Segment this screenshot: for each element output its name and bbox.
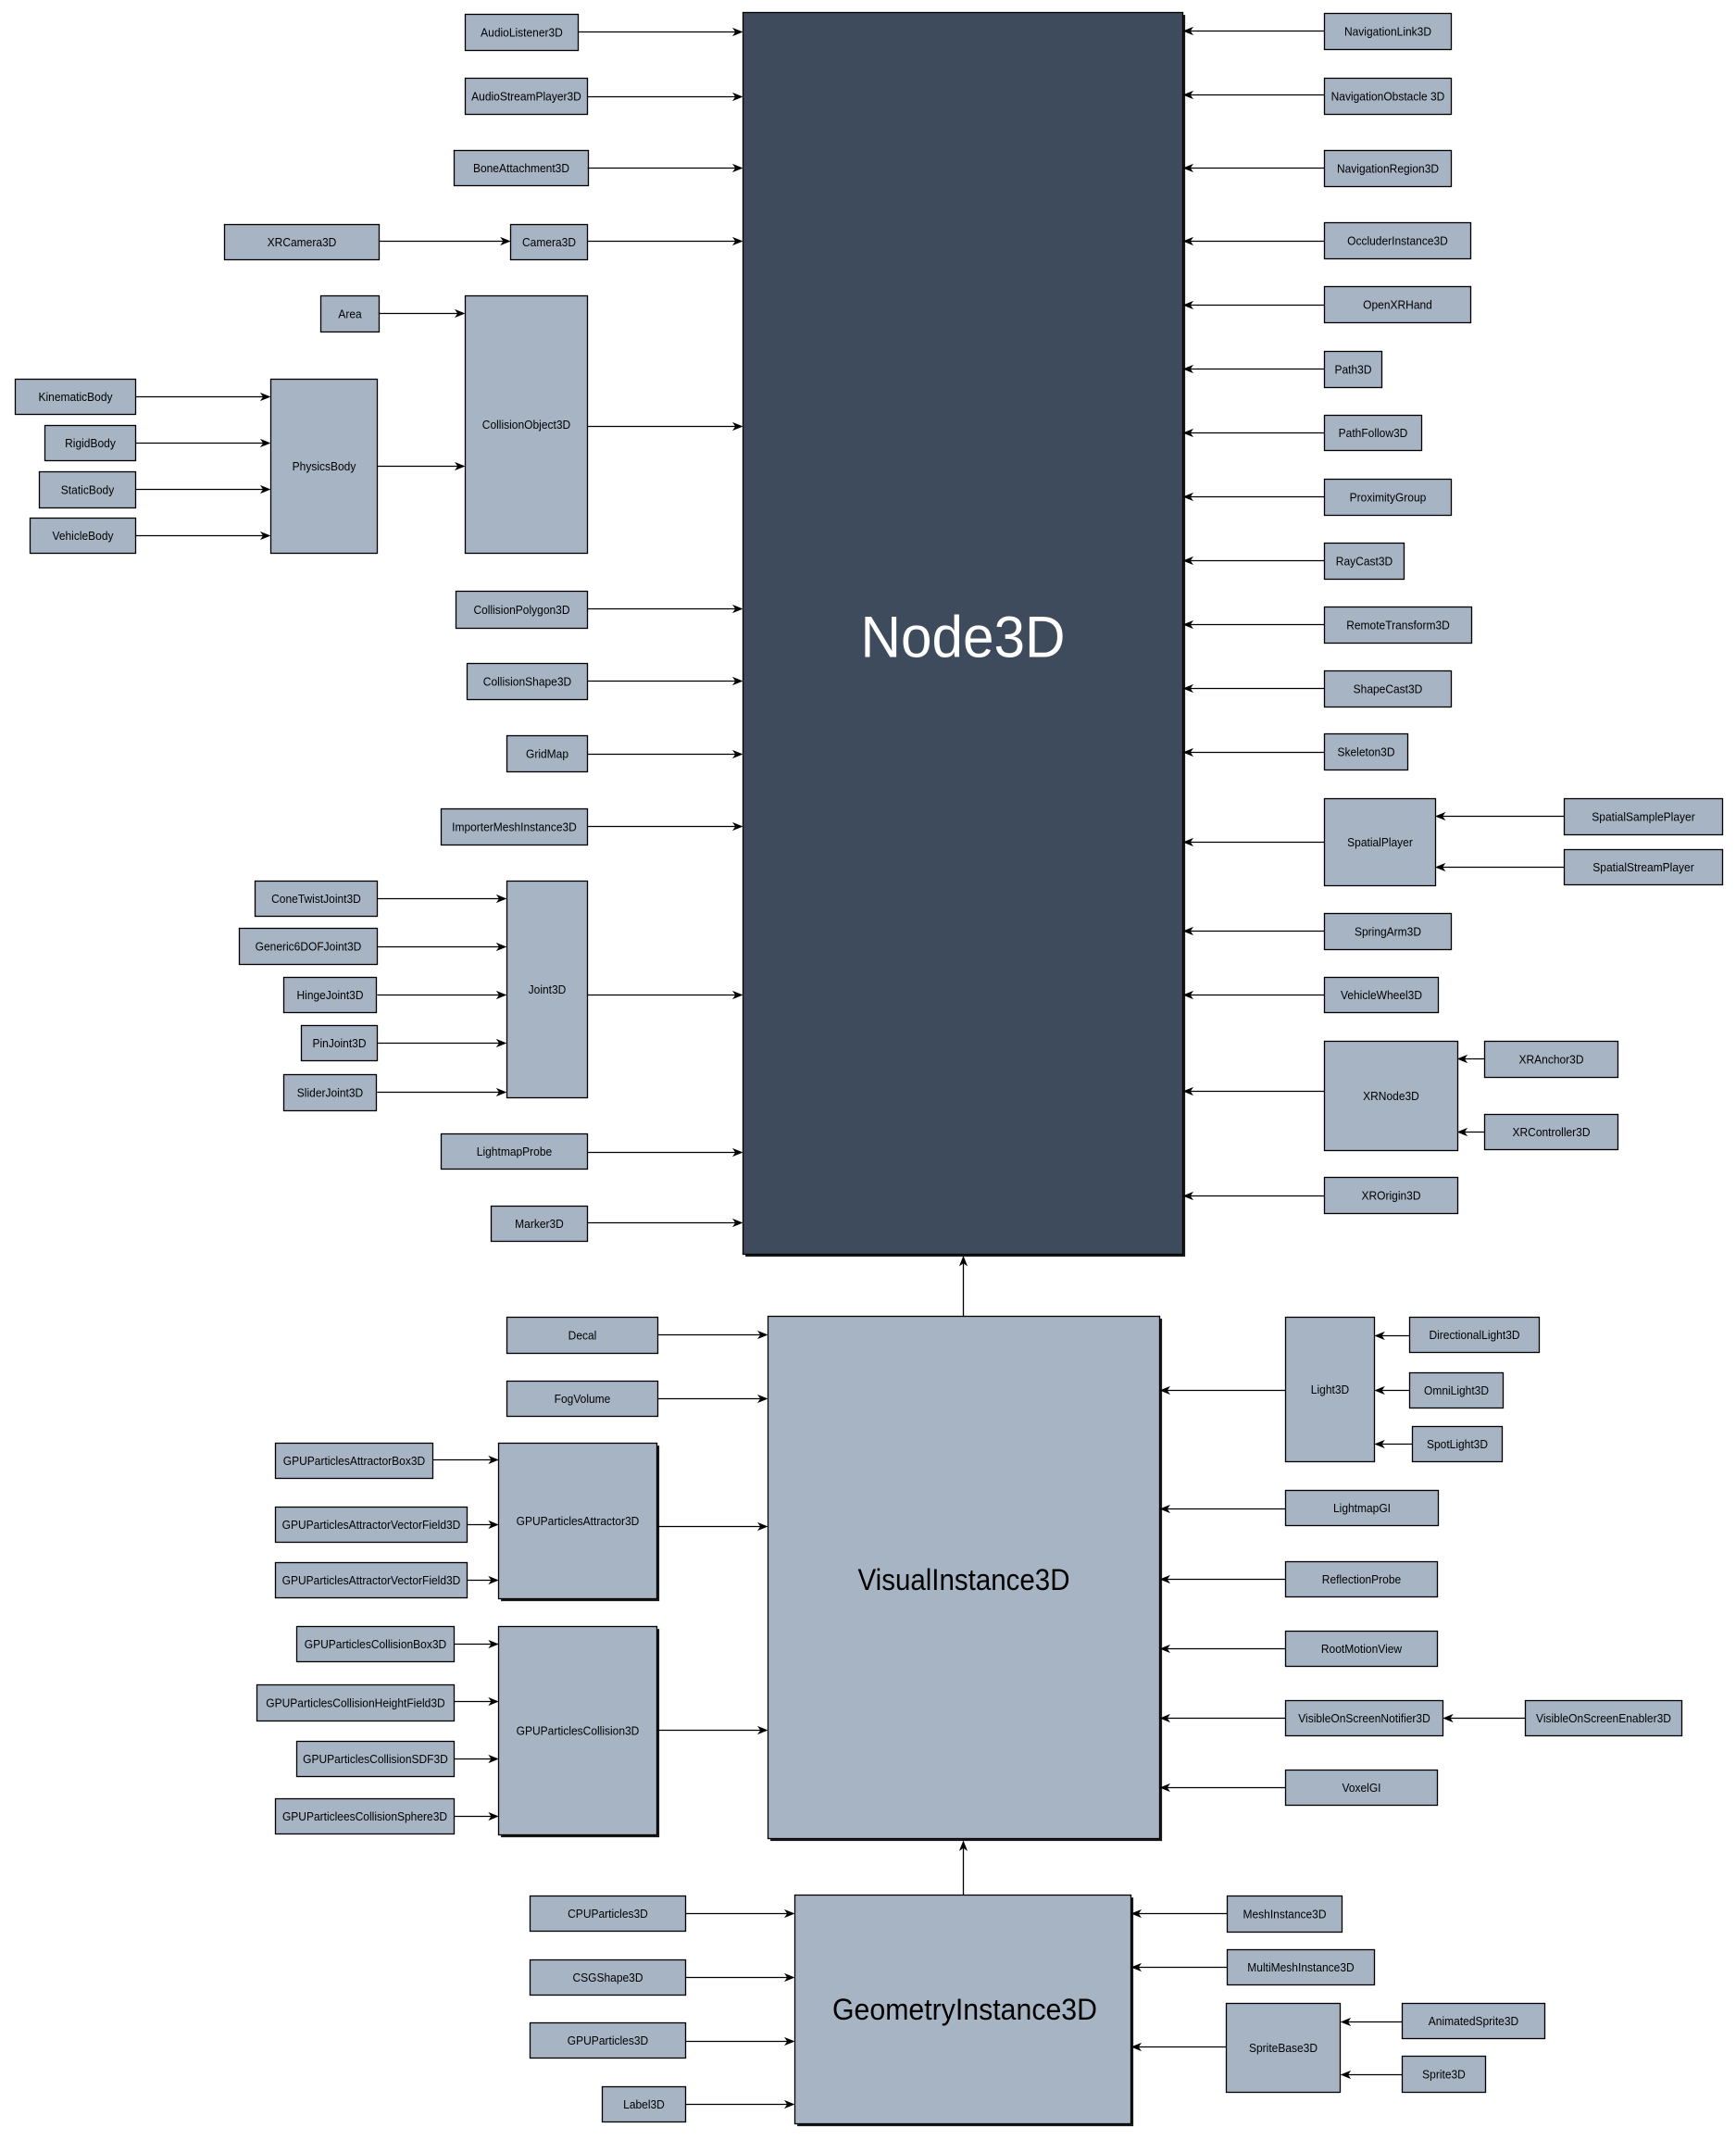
svg-text:BoneAttachment3D: BoneAttachment3D <box>473 162 569 175</box>
svg-text:Joint3D: Joint3D <box>529 983 567 996</box>
svg-text:AudioStreamPlayer3D: AudioStreamPlayer3D <box>471 90 581 103</box>
svg-text:CollisionObject3D: CollisionObject3D <box>482 419 570 432</box>
svg-text:VisualInstance3D: VisualInstance3D <box>858 1563 1070 1596</box>
svg-text:StaticBody: StaticBody <box>61 483 115 496</box>
svg-text:Sprite3D: Sprite3D <box>1422 2068 1466 2081</box>
svg-text:SliderJoint3D: SliderJoint3D <box>297 1086 363 1099</box>
svg-text:VoxelGI: VoxelGI <box>1343 1782 1381 1795</box>
svg-text:CPUParticles3D: CPUParticles3D <box>568 1908 648 1921</box>
svg-text:RigidBody: RigidBody <box>65 437 116 450</box>
svg-text:GPUParticlesAttractor3D: GPUParticlesAttractor3D <box>517 1515 640 1528</box>
svg-text:Camera3D: Camera3D <box>522 236 576 249</box>
svg-text:GPUParticlesAttractorBox3D: GPUParticlesAttractorBox3D <box>283 1455 425 1468</box>
svg-text:XRAnchor3D: XRAnchor3D <box>1519 1053 1584 1066</box>
svg-text:SpatialStreamPlayer: SpatialStreamPlayer <box>1592 861 1694 874</box>
svg-text:GPUParticlesCollision3D: GPUParticlesCollision3D <box>517 1724 640 1737</box>
svg-text:GPUParticles3D: GPUParticles3D <box>568 2034 648 2047</box>
svg-text:Light3D: Light3D <box>1311 1383 1349 1396</box>
svg-text:SpringArm3D: SpringArm3D <box>1355 925 1421 938</box>
svg-text:GeometryInstance3D: GeometryInstance3D <box>832 1993 1097 2026</box>
svg-text:GPUParticlesAttractorVectorFie: GPUParticlesAttractorVectorField3D <box>282 1574 461 1587</box>
svg-text:Area: Area <box>338 307 362 320</box>
svg-text:KinematicBody: KinematicBody <box>39 391 114 404</box>
svg-text:RemoteTransform3D: RemoteTransform3D <box>1346 619 1450 632</box>
svg-text:OmniLight3D: OmniLight3D <box>1424 1384 1489 1397</box>
svg-text:XROrigin3D: XROrigin3D <box>1362 1189 1421 1202</box>
svg-text:XRController3D: XRController3D <box>1513 1126 1591 1139</box>
svg-text:GPUParticleesCollisionSphere3D: GPUParticleesCollisionSphere3D <box>282 1810 447 1823</box>
svg-text:PhysicsBody: PhysicsBody <box>293 460 356 473</box>
svg-text:GPUParticlesAttractorVectorFie: GPUParticlesAttractorVectorField3D <box>282 1519 461 1532</box>
svg-text:MeshInstance3D: MeshInstance3D <box>1243 1908 1327 1921</box>
svg-text:SpatialSamplePlayer: SpatialSamplePlayer <box>1592 810 1695 823</box>
svg-text:Node3D: Node3D <box>861 606 1066 670</box>
svg-text:ImporterMeshInstance3D: ImporterMeshInstance3D <box>452 820 577 833</box>
svg-text:GPUParticlesCollisionHeightFie: GPUParticlesCollisionHeightField3D <box>266 1696 444 1709</box>
svg-text:PinJoint3D: PinJoint3D <box>313 1037 367 1050</box>
svg-text:VisibleOnScreenNotifier3D: VisibleOnScreenNotifier3D <box>1298 1712 1430 1725</box>
svg-text:ShapeCast3D: ShapeCast3D <box>1354 682 1423 695</box>
svg-text:GPUParticlesCollisionSDF3D: GPUParticlesCollisionSDF3D <box>303 1753 448 1766</box>
svg-text:LightmapGI: LightmapGI <box>1333 1502 1391 1515</box>
svg-text:ProximityGroup: ProximityGroup <box>1350 491 1427 504</box>
svg-text:CollisionPolygon3D: CollisionPolygon3D <box>473 604 569 617</box>
svg-text:Generic6DOFJoint3D: Generic6DOFJoint3D <box>256 940 362 953</box>
svg-text:Decal: Decal <box>568 1329 597 1342</box>
svg-text:LightmapProbe: LightmapProbe <box>477 1145 552 1158</box>
svg-text:SpriteBase3D: SpriteBase3D <box>1249 2042 1318 2055</box>
svg-text:FogVolume: FogVolume <box>555 1393 611 1406</box>
svg-text:RayCast3D: RayCast3D <box>1336 555 1393 568</box>
svg-text:Marker3D: Marker3D <box>515 1218 564 1231</box>
svg-text:OpenXRHand: OpenXRHand <box>1363 298 1432 311</box>
svg-text:GPUParticlesCollisionBox3D: GPUParticlesCollisionBox3D <box>305 1638 446 1651</box>
svg-text:GridMap: GridMap <box>526 747 568 760</box>
svg-text:NavigationRegion3D: NavigationRegion3D <box>1337 162 1439 175</box>
svg-text:Label3D: Label3D <box>623 2098 665 2111</box>
svg-text:AnimatedSprite3D: AnimatedSprite3D <box>1429 2015 1518 2028</box>
svg-text:NavigationLink3D: NavigationLink3D <box>1344 25 1431 38</box>
svg-text:VisibleOnScreenEnabler3D: VisibleOnScreenEnabler3D <box>1536 1712 1671 1725</box>
svg-text:MultiMeshInstance3D: MultiMeshInstance3D <box>1247 1961 1354 1974</box>
svg-text:Skeleton3D: Skeleton3D <box>1338 745 1395 758</box>
svg-text:OccluderInstance3D: OccluderInstance3D <box>1347 234 1448 247</box>
svg-text:VehicleWheel3D: VehicleWheel3D <box>1341 989 1422 1002</box>
svg-text:Path3D: Path3D <box>1335 363 1372 376</box>
svg-text:NavigationObstacle 3D: NavigationObstacle 3D <box>1331 90 1445 103</box>
svg-text:SpotLight3D: SpotLight3D <box>1427 1438 1488 1451</box>
svg-text:DirectionalLight3D: DirectionalLight3D <box>1429 1329 1519 1342</box>
svg-text:RootMotionView: RootMotionView <box>1321 1643 1403 1656</box>
svg-text:XRNode3D: XRNode3D <box>1363 1090 1419 1103</box>
svg-text:HingeJoint3D: HingeJoint3D <box>297 989 364 1002</box>
svg-text:PathFollow3D: PathFollow3D <box>1339 427 1408 440</box>
svg-text:ConeTwistJoint3D: ConeTwistJoint3D <box>271 893 361 906</box>
svg-text:AudioListener3D: AudioListener3D <box>481 26 563 39</box>
svg-text:XRCamera3D: XRCamera3D <box>268 236 337 249</box>
svg-text:CSGShape3D: CSGShape3D <box>573 1971 643 1984</box>
svg-text:VehicleBody: VehicleBody <box>53 530 115 543</box>
svg-text:CollisionShape3D: CollisionShape3D <box>483 675 571 688</box>
svg-text:SpatialPlayer: SpatialPlayer <box>1347 836 1413 849</box>
svg-text:ReflectionProbe: ReflectionProbe <box>1322 1573 1401 1586</box>
